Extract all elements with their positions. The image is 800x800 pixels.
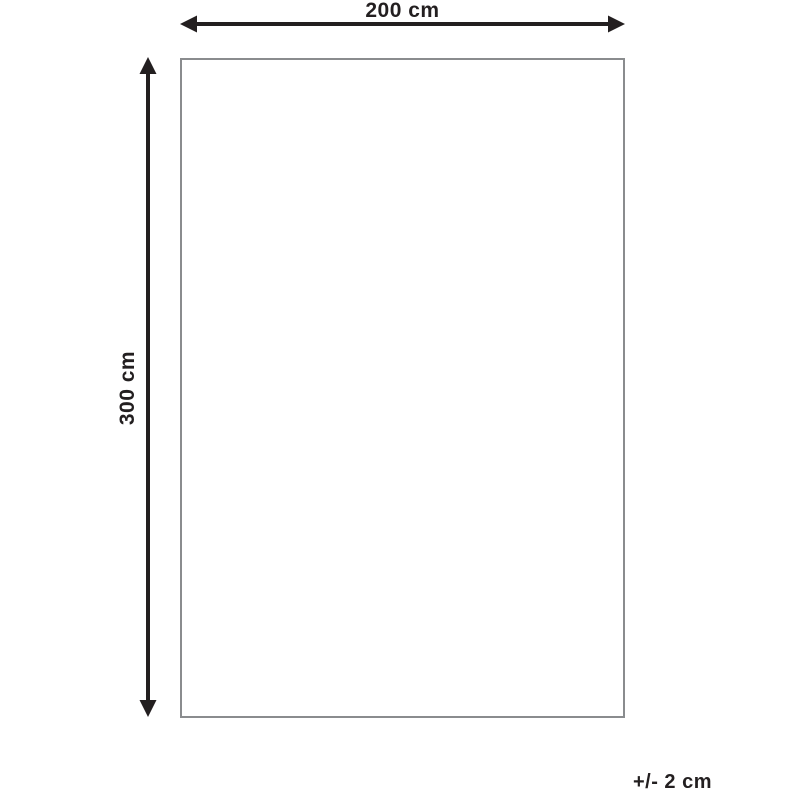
height-dimension-label: 300 cm xyxy=(116,338,140,438)
width-dimension-label: 200 cm xyxy=(180,0,625,22)
arrow-head-down-icon xyxy=(140,700,157,717)
product-outline-rectangle xyxy=(181,59,624,717)
tolerance-label: +/- 2 cm xyxy=(562,770,712,794)
dimension-diagram: 200 cm 300 cm +/- 2 cm xyxy=(0,0,800,800)
arrow-head-up-icon xyxy=(140,57,157,74)
vertical-dimension-arrow xyxy=(140,57,157,717)
